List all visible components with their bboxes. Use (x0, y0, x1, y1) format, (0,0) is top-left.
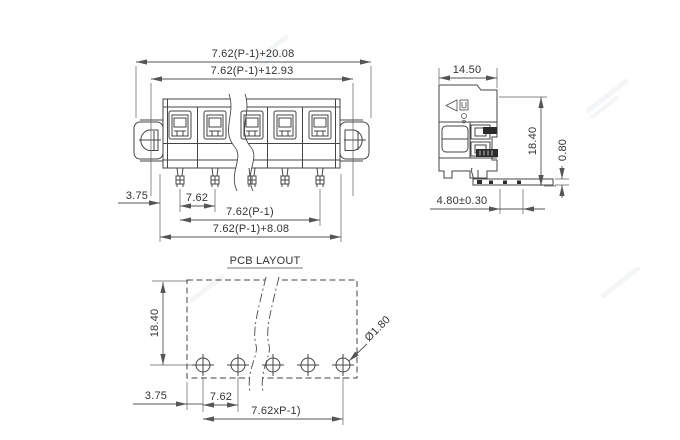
dim-label: Ø1.80 (363, 314, 393, 344)
terminal-window (309, 111, 331, 139)
dim-label: 0.80 (557, 139, 569, 161)
dim-label: 7.62 (186, 192, 208, 204)
dim-label: 7.62(P-1) (226, 206, 274, 218)
dim-pcb-left-offset: 3.75 (133, 382, 203, 410)
pcb-layout: PCB LAYOUT 18.40 Ø1.80 (133, 255, 393, 425)
dim-label: 7.62xP-1) (251, 405, 301, 417)
dim-label: 7.62(P-1)+20.08 (212, 48, 295, 60)
terminal-window (274, 111, 296, 139)
dim-label: 3.75 (126, 190, 148, 202)
solder-pin (176, 168, 184, 187)
mounting-flange-right (340, 120, 369, 161)
solder-pin (281, 168, 289, 187)
dim-label: 7.62(P-1)+8.08 (213, 223, 290, 235)
dim-pcb-height: 18.40 (149, 281, 188, 365)
dim-label: 7.62 (210, 391, 232, 403)
dim-label: 7.62(P-1)+12.93 (211, 65, 294, 77)
dim-side-width: 14.50 (439, 64, 497, 88)
dim-front-left-offset: 3.75 (118, 174, 160, 242)
cert-marks (460, 100, 468, 123)
side-view: 14.50 18.40 0.80 4.80±0.30 (430, 64, 569, 214)
solder-pin (316, 168, 324, 187)
pcb-break-lines (249, 277, 279, 392)
date-code-badge (483, 127, 497, 134)
dim-side-pin-thickness: 0.80 (555, 139, 569, 198)
terminal-window (241, 111, 263, 139)
drawing-canvas: 7.62(P-1)+20.08 7.62(P-1)+12.93 3.75 7.6… (0, 0, 680, 440)
technical-drawing: 7.62(P-1)+20.08 7.62(P-1)+12.93 3.75 7.6… (0, 0, 680, 440)
front-view: 7.62(P-1)+20.08 7.62(P-1)+12.93 3.75 7.6… (118, 48, 371, 242)
terminal-window (204, 111, 226, 139)
pcb-hole (332, 354, 354, 376)
pcb-layout-title: PCB LAYOUT (230, 255, 301, 267)
pcb-hole (227, 354, 249, 376)
dim-pcb-hole-diameter: Ø1.80 (349, 314, 393, 361)
pcb-hole (192, 354, 214, 376)
pcb-hole (297, 354, 319, 376)
brand-badge (476, 149, 498, 157)
dim-label: 3.75 (145, 390, 167, 402)
dim-label: 18.40 (149, 309, 161, 338)
terminal-window (169, 111, 191, 139)
recycle-triangle-mark (446, 100, 457, 111)
dim-front-pitch: 7.62 (180, 189, 215, 212)
dim-label: 18.40 (527, 127, 539, 156)
dim-pcb-pitch: 7.62 (203, 377, 238, 412)
dim-side-pin-length: 4.80±0.30 (430, 189, 545, 214)
solder-pin (211, 168, 219, 187)
mounting-flange-left (134, 120, 163, 161)
dim-side-height: 18.40 (499, 97, 556, 186)
dim-label: 4.80±0.30 (437, 195, 488, 207)
dim-label: 14.50 (453, 64, 482, 76)
